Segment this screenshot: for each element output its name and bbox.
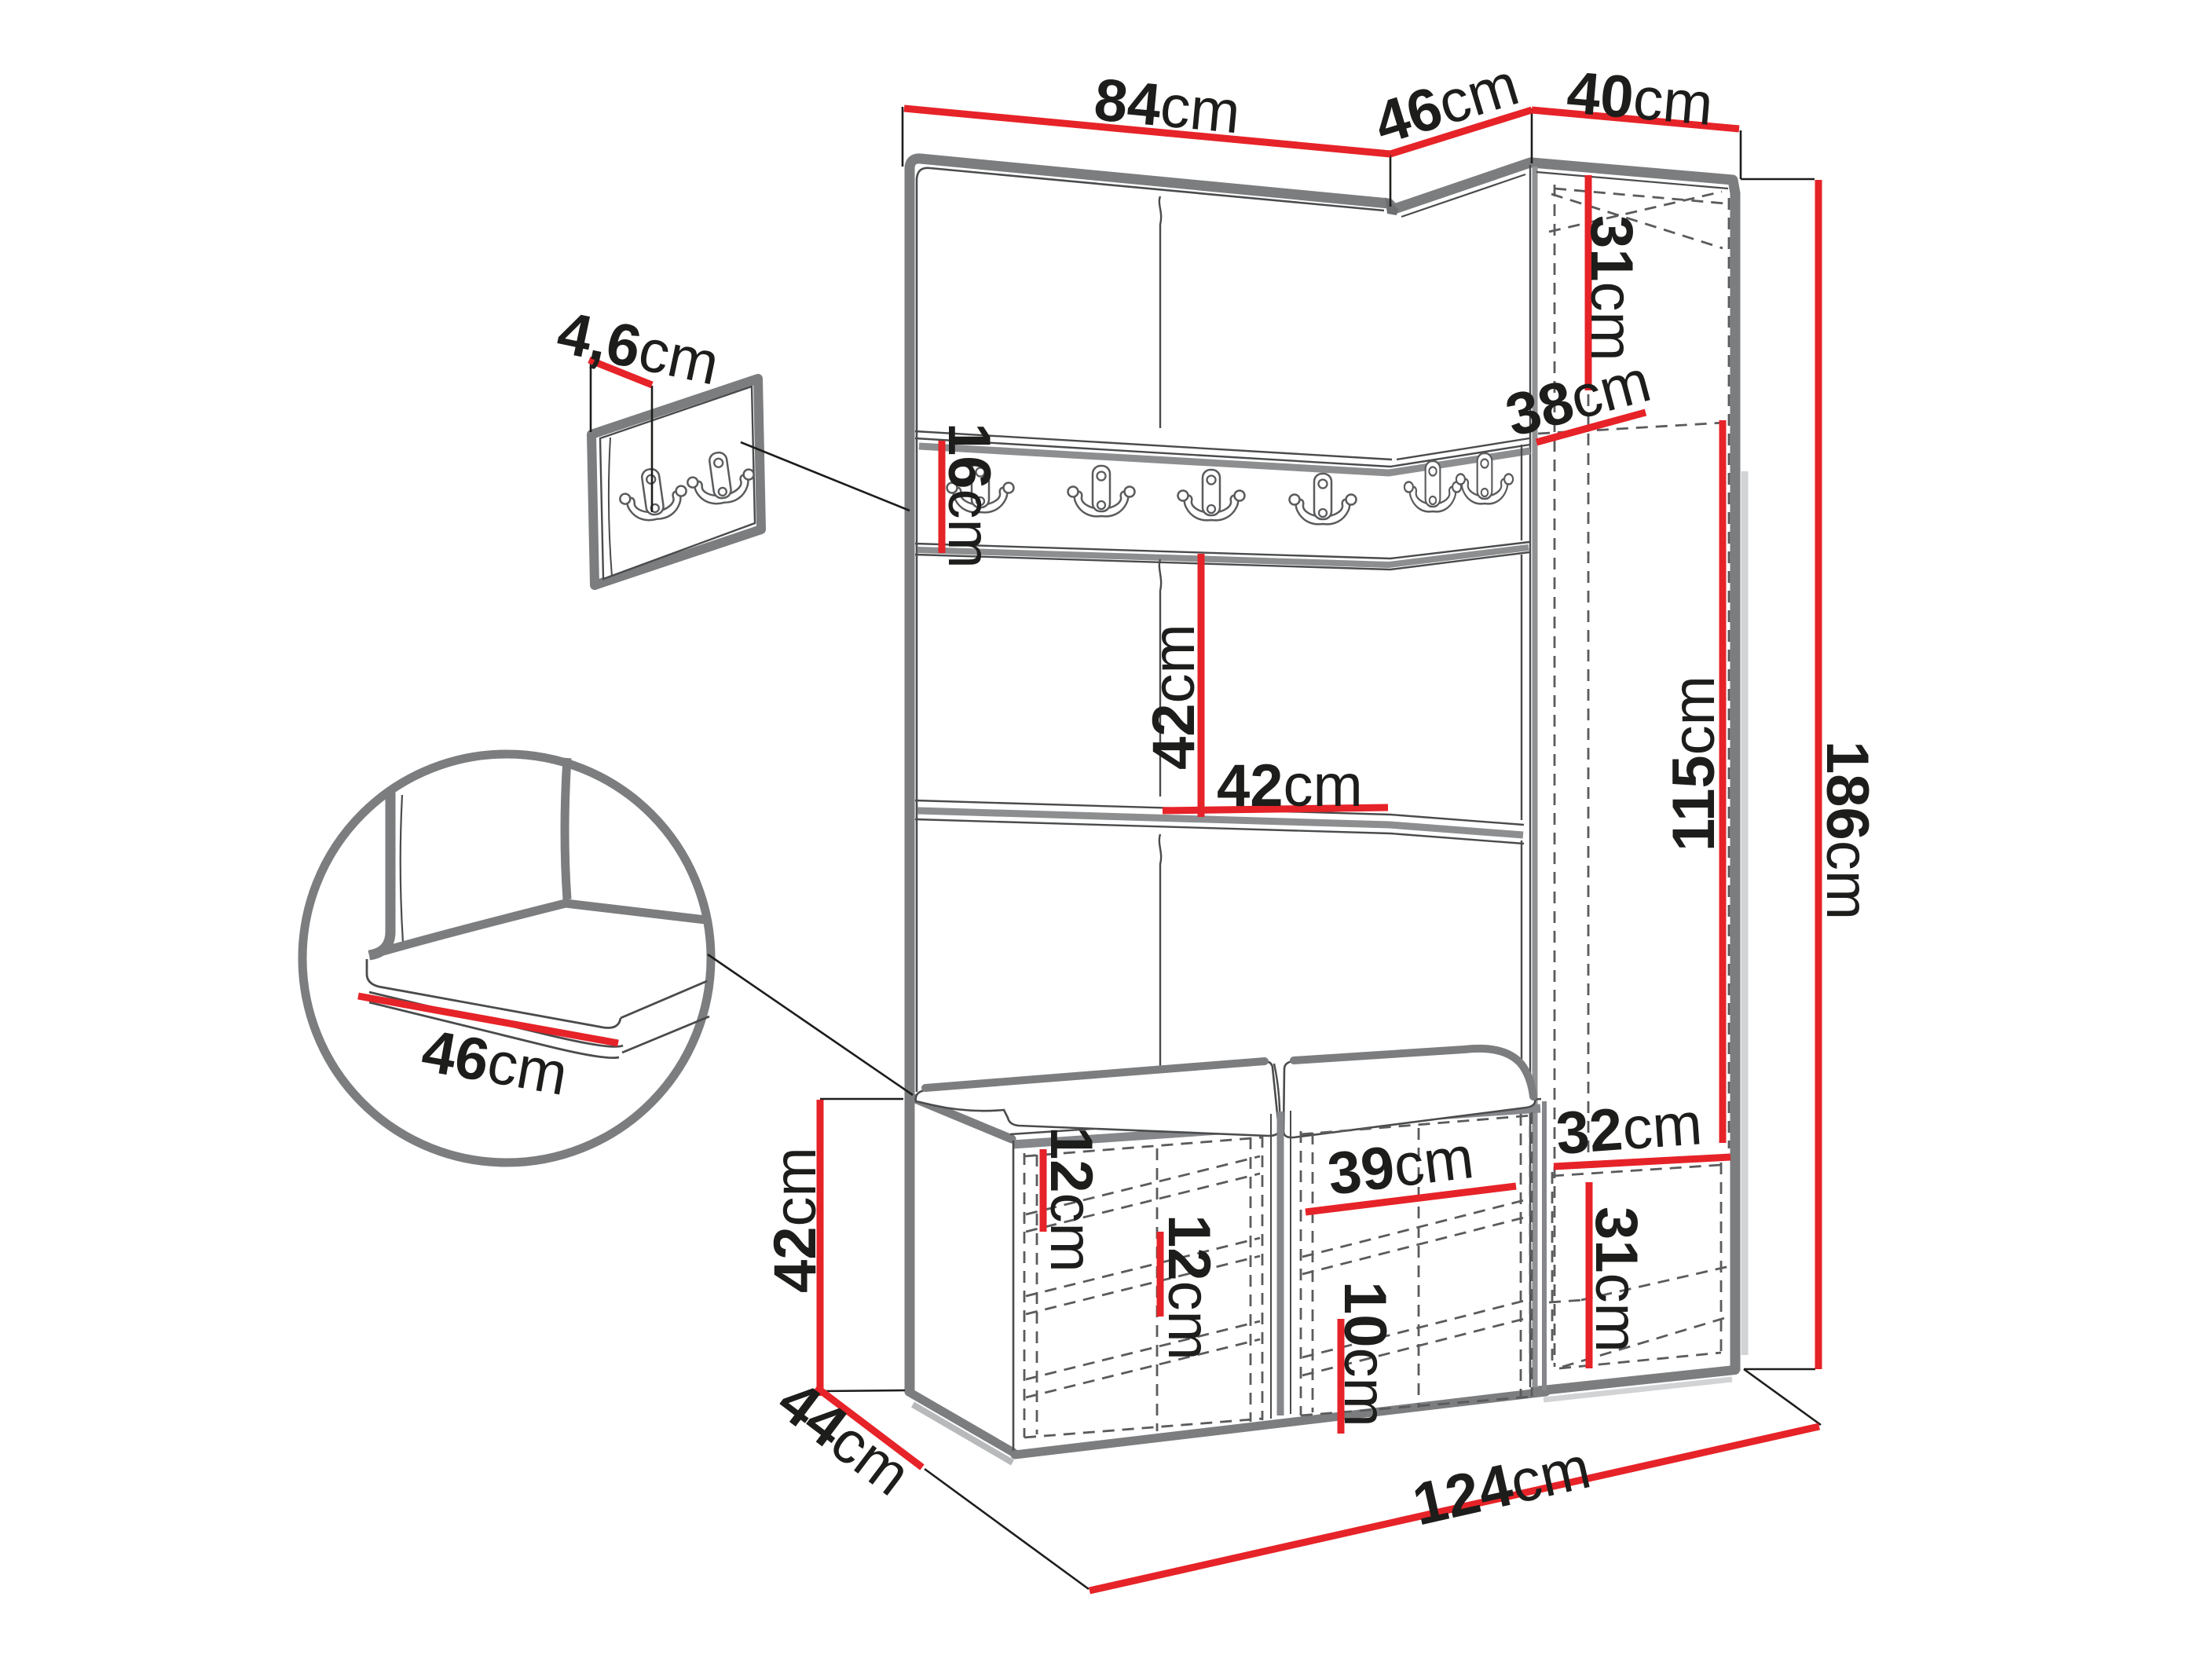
svg-text:42cm: 42cm xyxy=(1141,624,1207,770)
svg-text:16cm: 16cm xyxy=(936,423,1002,569)
svg-text:12cm: 12cm xyxy=(1155,1214,1222,1361)
svg-text:31cm: 31cm xyxy=(1583,1207,1650,1353)
svg-text:115cm: 115cm xyxy=(1661,676,1727,851)
svg-text:32cm: 32cm xyxy=(1554,1090,1704,1167)
svg-text:42cm: 42cm xyxy=(1217,753,1363,819)
svg-text:31cm: 31cm xyxy=(1578,215,1645,361)
svg-text:12cm: 12cm xyxy=(1038,1126,1104,1273)
svg-text:40cm: 40cm xyxy=(1565,59,1716,138)
svg-text:84cm: 84cm xyxy=(1091,66,1243,146)
svg-text:10cm: 10cm xyxy=(1331,1281,1398,1427)
svg-text:42cm: 42cm xyxy=(762,1147,829,1293)
svg-text:186cm: 186cm xyxy=(1814,741,1881,920)
